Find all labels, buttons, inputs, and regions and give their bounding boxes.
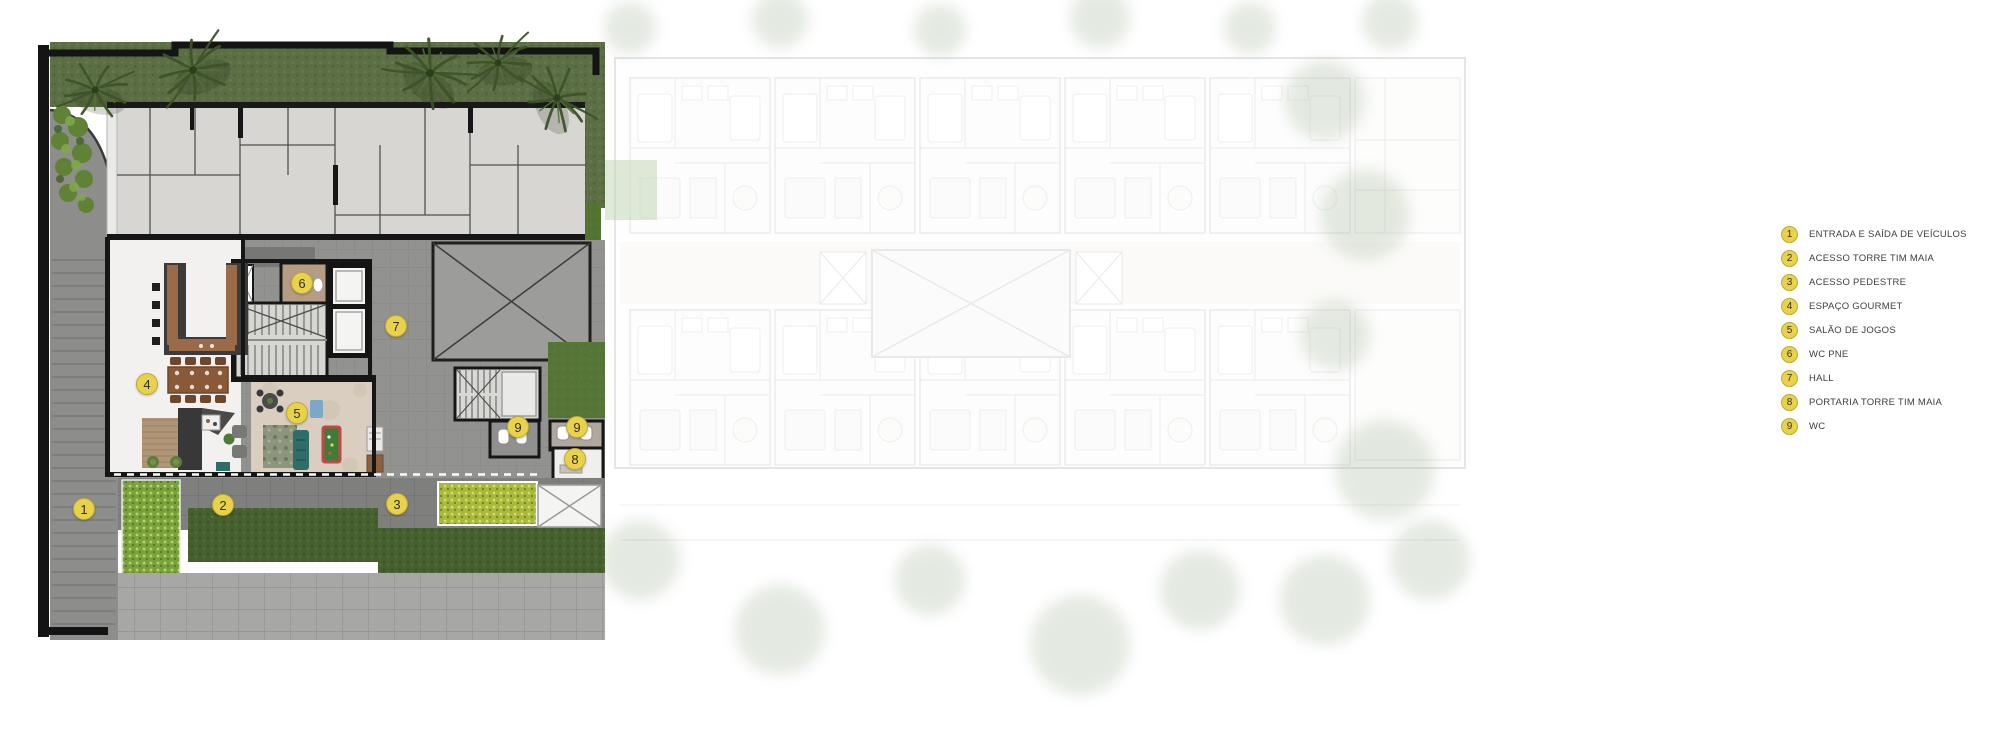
legend-item-1: 1 ENTRADA E SAÍDA DE VEÍCULOS [1781,226,1967,243]
legend-badge-2: 2 [1781,250,1798,267]
legend-label-4: ESPAÇO GOURMET [1809,302,1903,312]
legend-label-6: WC PNE [1809,350,1849,360]
legend-item-7: 7 HALL [1781,370,1967,387]
legend-item-5: 5 SALÃO DE JOGOS [1781,322,1967,339]
site-plan-highlighted [30,15,605,640]
plan-marker-3: 3 [386,493,408,515]
plan-marker-5: 5 [286,402,308,424]
legend-label-9: WC [1809,422,1825,432]
legend-label-2: ACESSO TORRE TIM MAIA [1809,254,1934,264]
legend-label-3: ACESSO PEDESTRE [1809,278,1906,288]
plan-marker-2: 2 [212,494,234,516]
legend: 1 ENTRADA E SAÍDA DE VEÍCULOS 2 ACESSO T… [1781,226,1967,435]
site-plan-faded [480,0,1480,732]
plan-marker-6: 6 [291,272,313,294]
legend-item-8: 8 PORTARIA TORRE TIM MAIA [1781,394,1967,411]
legend-badge-6: 6 [1781,346,1798,363]
legend-item-6: 6 WC PNE [1781,346,1967,363]
legend-badge-4: 4 [1781,298,1798,315]
legend-label-5: SALÃO DE JOGOS [1809,326,1896,336]
legend-badge-9: 9 [1781,418,1798,435]
plan-marker-9b: 9 [566,416,588,438]
site-plan-viewer: 1 2 3 4 5 6 7 9 9 8 1 ENTRADA E SAÍDA DE… [0,0,2000,732]
legend-badge-3: 3 [1781,274,1798,291]
plan-marker-1: 1 [73,498,95,520]
legend-badge-7: 7 [1781,370,1798,387]
legend-item-2: 2 ACESSO TORRE TIM MAIA [1781,250,1967,267]
legend-item-9: 9 WC [1781,418,1967,435]
legend-badge-1: 1 [1781,226,1798,243]
legend-label-7: HALL [1809,374,1834,384]
legend-item-4: 4 ESPAÇO GOURMET [1781,298,1967,315]
plan-marker-4: 4 [136,373,158,395]
legend-label-8: PORTARIA TORRE TIM MAIA [1809,398,1942,408]
plan-marker-7: 7 [385,315,407,337]
legend-item-3: 3 ACESSO PEDESTRE [1781,274,1967,291]
legend-badge-5: 5 [1781,322,1798,339]
legend-label-1: ENTRADA E SAÍDA DE VEÍCULOS [1809,230,1967,240]
plan-marker-8: 8 [564,448,586,470]
legend-badge-8: 8 [1781,394,1798,411]
plan-marker-9a: 9 [507,416,529,438]
